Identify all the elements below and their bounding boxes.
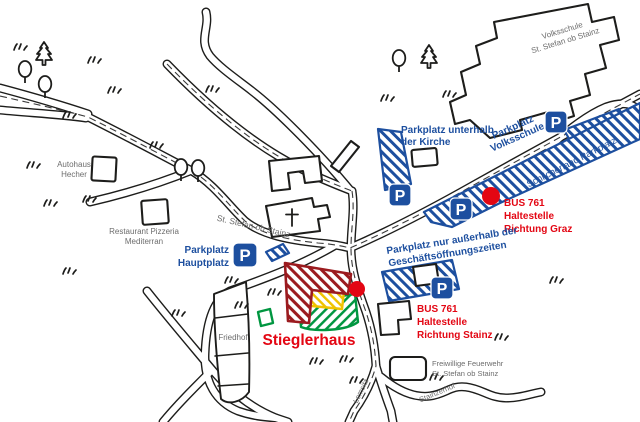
autohaus-building <box>91 156 116 181</box>
friedhof-label: Friedhof <box>218 333 248 342</box>
grass-icon <box>27 162 40 168</box>
label-parkplatz-kirche: Parkplatz unterhalb der Kirche <box>401 125 494 148</box>
parking-badge-volksschule: P <box>545 111 567 133</box>
round-tree-icon <box>19 61 32 83</box>
bus-stop-graz-dot <box>482 187 500 205</box>
map-canvas: P P P P P Volksschule St. Stefan ob Stai… <box>0 0 640 422</box>
fir-tree-icon <box>421 45 437 68</box>
cemetery-area <box>214 282 249 402</box>
parking-sign-letter: P <box>395 188 406 205</box>
fir-tree-icon <box>36 42 52 65</box>
restaurant-line1: Restaurant Pizzeria <box>109 227 179 236</box>
restaurant-line2: Mediterran <box>125 237 163 246</box>
feuerwehr-building <box>390 357 426 380</box>
parking-badge-schilcherland: P <box>450 198 472 220</box>
grass-icon <box>225 277 238 283</box>
bus-graz-line2: Haltestelle <box>504 211 554 222</box>
grass-icon <box>88 57 101 63</box>
bus-stainz-line3: Richtung Stainz <box>417 330 493 341</box>
grass-icon <box>495 334 508 340</box>
slanted-building <box>331 141 359 172</box>
parking-sign-letter: P <box>239 246 250 265</box>
grass-icon <box>172 310 185 316</box>
green-annex <box>258 309 273 326</box>
building-north-of-church <box>269 156 322 191</box>
grass-icon <box>14 44 27 50</box>
grass-icon <box>206 86 219 92</box>
bus-stop-stainz-dot <box>349 281 365 297</box>
label-feuerwehr: Freiwillige Feuerwehr St. Stefan ob Stai… <box>432 359 504 378</box>
stieglerhaus-label: Stieglerhaus <box>262 332 355 349</box>
parking-sign-letter: P <box>551 115 562 132</box>
parking-badge-hauptplatz: P <box>233 243 257 267</box>
feuerwehr-line2: St. Stefan ob Stainz <box>432 369 499 378</box>
l-shaped-building <box>378 301 411 335</box>
label-restaurant: Restaurant Pizzeria Mediterran <box>109 227 179 246</box>
parkplatz-hauptplatz-line2: Hauptplatz <box>178 258 229 269</box>
label-parkplatz-hauptplatz: Parkplatz Hauptplatz <box>178 245 229 269</box>
restaurant-building <box>141 199 169 225</box>
parkplatz-kirche-line2: der Kirche <box>401 137 451 148</box>
grass-icon <box>63 268 76 274</box>
parkplatz-hauptplatz-line1: Parkplatz <box>185 245 229 256</box>
bus-graz-line1: BUS 761 <box>504 198 545 209</box>
grass-icon <box>443 91 456 97</box>
round-tree-icon <box>393 50 406 72</box>
feuerwehr-line1: Freiwillige Feuerwehr <box>432 359 504 368</box>
grass-icon <box>44 200 57 206</box>
parking-badge-kirche: P <box>389 184 411 206</box>
parking-lot-hauptplatz <box>266 244 289 261</box>
grass-icon <box>550 277 563 283</box>
building-below-kirche-lot <box>411 148 437 167</box>
parking-sign-letter: P <box>456 202 467 219</box>
bus-stainz-line1: BUS 761 <box>417 304 458 315</box>
parkplatz-kirche-line1: Parkplatz unterhalb <box>401 125 494 136</box>
site-map: P P P P P Volksschule St. Stefan ob Stai… <box>0 0 640 422</box>
grass-icon <box>268 289 281 295</box>
autohaus-line2: Hecher <box>61 170 87 179</box>
grass-icon <box>381 95 394 101</box>
label-bus-stainz: BUS 761 Haltestelle Richtung Stainz <box>417 304 493 341</box>
grass-icon <box>310 358 323 364</box>
grass-icon <box>340 356 353 362</box>
autohaus-line1: Autohaus <box>57 160 91 169</box>
parking-badge-geschaeft: P <box>431 277 453 299</box>
bus-stainz-line2: Haltestelle <box>417 317 467 328</box>
label-autohaus: Autohaus Hecher <box>57 160 91 179</box>
parking-sign-letter: P <box>437 281 448 298</box>
grass-icon <box>108 87 121 93</box>
